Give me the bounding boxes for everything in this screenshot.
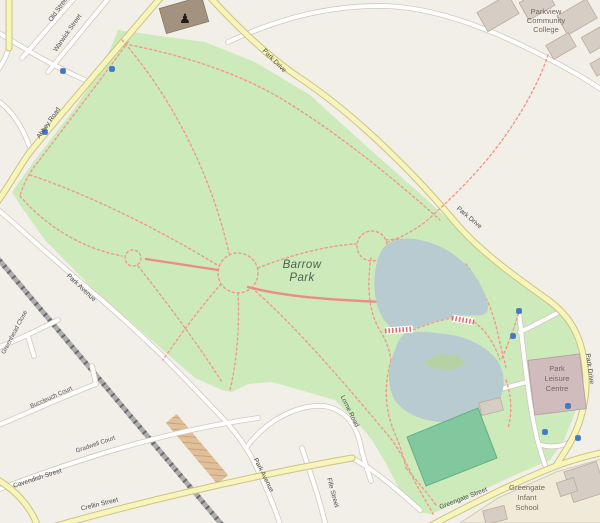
school-label-line2: Infant	[518, 493, 538, 502]
college-label-line1: Parkview	[531, 7, 562, 16]
map-marker-icon[interactable]	[61, 69, 66, 74]
footbridge-west	[385, 329, 413, 331]
footbridge-east	[452, 318, 474, 322]
leisure-label-line3: Centre	[546, 384, 569, 393]
park-name-line1: Barrow	[283, 259, 322, 271]
school-label-line3: School	[515, 503, 539, 512]
map-marker-icon[interactable]	[517, 309, 522, 314]
map-marker-icon[interactable]	[576, 436, 581, 441]
map-marker-icon[interactable]	[566, 404, 571, 409]
park-name-line2: Park	[289, 272, 315, 284]
school-label-line1: Greengate	[509, 483, 545, 492]
leisure-label-line2: Leisure	[545, 374, 570, 383]
leisure-label-line1: Park	[549, 364, 565, 373]
college-label-line3: College	[533, 25, 559, 34]
map-marker-icon[interactable]	[511, 334, 516, 339]
map-marker-icon[interactable]	[543, 430, 548, 435]
map-canvas[interactable]: ♟ Old Street Warwick Street Abbey Road P…	[0, 0, 600, 523]
map-svg: ♟ Old Street Warwick Street Abbey Road P…	[0, 0, 600, 523]
college-label-line2: Community	[527, 16, 566, 25]
monument-icon: ♟	[179, 11, 191, 26]
map-marker-icon[interactable]	[110, 67, 115, 72]
